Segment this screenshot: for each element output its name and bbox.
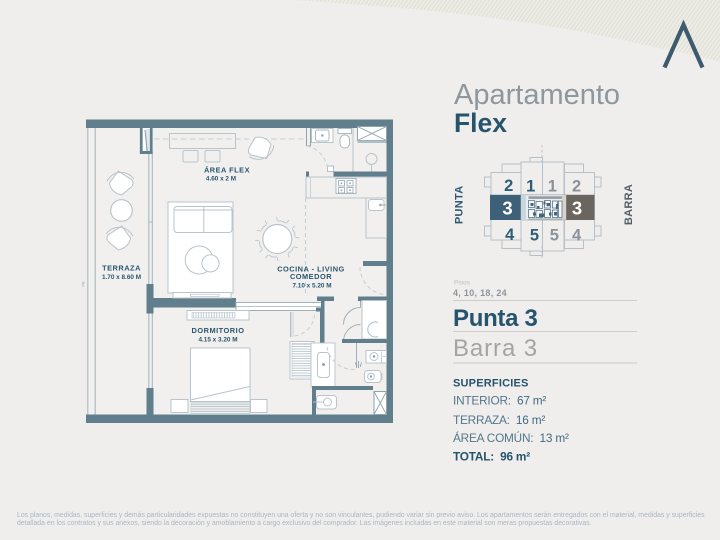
svg-text:Apartamento: Apartamento (454, 79, 620, 111)
svg-text:7.10 x 5.20 M: 7.10 x 5.20 M (292, 283, 331, 290)
svg-text:DORMITORIO: DORMITORIO (192, 326, 245, 335)
svg-text:detallada en los contratos y s: detallada en los contratos y sus anexos,… (17, 520, 592, 527)
svg-text:4: 4 (505, 226, 515, 244)
svg-text:4.15 x 3.20 M: 4.15 x 3.20 M (198, 337, 237, 344)
svg-text:INTERIOR: 67 m²: INTERIOR: 67 m² (453, 394, 546, 408)
svg-text:1: 1 (548, 178, 557, 196)
svg-text:4, 10, 18, 24: 4, 10, 18, 24 (453, 288, 507, 298)
svg-text:Pisos: Pisos (454, 280, 471, 287)
svg-text:TERRAZA: 16 m²: TERRAZA: 16 m² (453, 413, 545, 427)
svg-text:2: 2 (572, 178, 581, 196)
svg-text:ÁREA FLEX: ÁREA FLEX (204, 165, 250, 174)
svg-text:5: 5 (550, 226, 559, 244)
svg-text:1: 1 (526, 178, 535, 196)
svg-text:BARRA: BARRA (623, 184, 635, 225)
svg-text:TERRAZA: TERRAZA (102, 264, 141, 273)
svg-text:TOTAL: 96 m²: TOTAL: 96 m² (453, 450, 530, 464)
svg-text:4: 4 (572, 226, 582, 244)
svg-text:Los planos, medidas, superfici: Los planos, medidas, superficies y demás… (17, 512, 705, 519)
svg-text:SUPERFICIES: SUPERFICIES (453, 378, 529, 390)
svg-text:5: 5 (530, 226, 539, 244)
svg-text:PUNTA: PUNTA (454, 186, 466, 225)
svg-text:ÁREA COMÚN: 13 m²: ÁREA COMÚN: 13 m² (453, 431, 569, 445)
svg-text:3: 3 (502, 197, 512, 218)
svg-text:COMEDOR: COMEDOR (290, 272, 332, 281)
svg-text:Flex: Flex (454, 108, 507, 138)
svg-text:3: 3 (572, 197, 582, 218)
svg-text:Barra 3: Barra 3 (453, 335, 538, 362)
svg-text:Punta 3: Punta 3 (453, 305, 538, 332)
svg-text:1.70 x 8.60 M: 1.70 x 8.60 M (102, 274, 141, 281)
svg-text:PB: PB (81, 281, 86, 287)
svg-text:4.60 x 2 M: 4.60 x 2 M (206, 176, 236, 183)
svg-text:2: 2 (504, 177, 513, 195)
